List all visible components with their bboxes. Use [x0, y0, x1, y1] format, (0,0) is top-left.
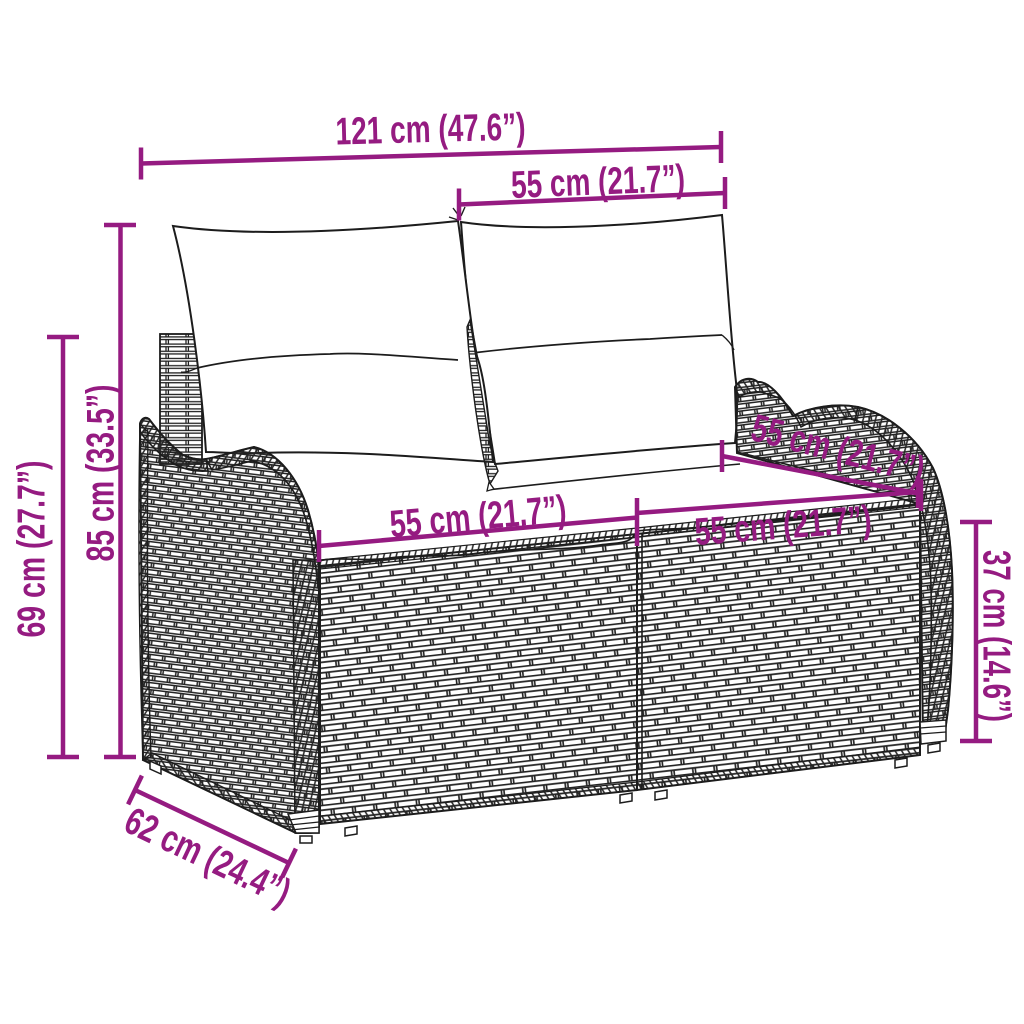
svg-text:55 cm (21.7”): 55 cm (21.7”): [510, 157, 686, 207]
svg-text:37 cm (14.6”): 37 cm (14.6”): [975, 550, 1018, 722]
svg-text:85 cm (33.5”): 85 cm (33.5”): [80, 385, 123, 562]
svg-text:69 cm (27.7”): 69 cm (27.7”): [11, 461, 54, 638]
svg-text:121 cm (47.6”): 121 cm (47.6”): [335, 106, 526, 154]
